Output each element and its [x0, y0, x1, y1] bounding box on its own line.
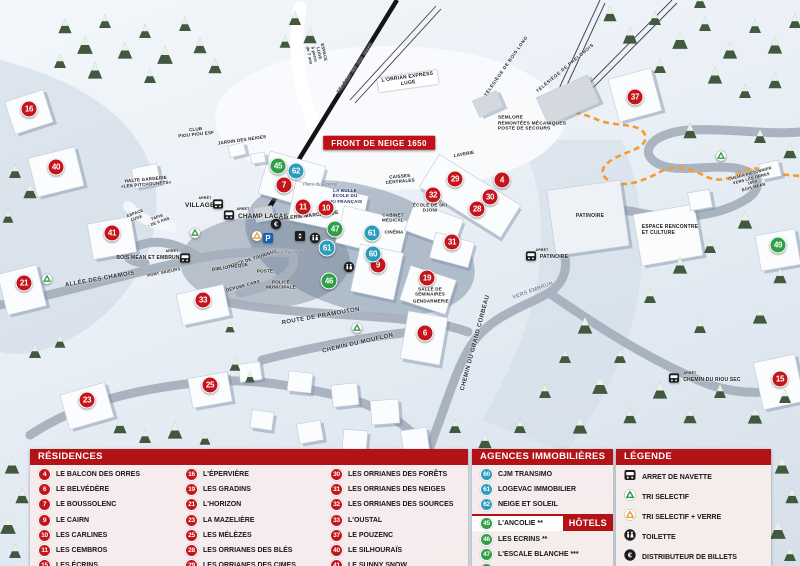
svg-text:€: € — [274, 221, 278, 228]
list-item-label: L'ÉPERVIÈRE — [203, 471, 249, 478]
marker-number-badge: 31 — [330, 483, 343, 496]
marker-number-badge: 7 — [38, 498, 51, 511]
marker-number-badge: 25 — [185, 529, 198, 542]
building — [633, 204, 703, 266]
map-marker-6: 6 — [417, 325, 434, 342]
tree-icon — [603, 6, 616, 21]
legend-item: €DISTRIBUTEUR DE BILLETS — [616, 547, 771, 566]
tree-icon — [225, 321, 235, 332]
tree-icon — [478, 433, 491, 448]
building — [342, 429, 368, 451]
map-marker-37: 37 — [627, 89, 644, 106]
tree-icon — [303, 28, 316, 43]
list-item: 62NEIGE ET SOLEIL — [472, 497, 613, 512]
legend-item: TRI SELECTIF — [616, 487, 771, 507]
map-marker-7: 7 — [276, 177, 293, 194]
map-marker-61: 61 — [364, 225, 381, 242]
marker-number-badge: 19 — [185, 483, 198, 496]
tree-icon — [139, 429, 151, 443]
map-marker-60: 60 — [365, 246, 382, 263]
list-item: 19LES GRADINS — [177, 482, 322, 497]
tree-icon — [789, 14, 800, 28]
tree-icon — [139, 24, 151, 38]
marker-number-badge: 33 — [330, 514, 343, 527]
tree-icon — [280, 35, 291, 48]
tree-icon — [88, 62, 102, 79]
tree-icon — [200, 432, 211, 445]
list-item-label: LES ORRIANES DES CIMES — [203, 562, 296, 566]
list-item-label: LE POUZENC — [348, 532, 393, 539]
map-marker-15: 15 — [772, 371, 789, 388]
tree-icon — [683, 408, 696, 423]
tree-icon — [5, 457, 19, 474]
tree-icon — [672, 31, 688, 49]
agences-title: AGENCES IMMOBILIÈRES — [472, 449, 613, 465]
list-item-label: LES GRADINS — [203, 486, 251, 493]
tree-icon — [54, 54, 66, 68]
list-item-label: LE CAIRN — [56, 517, 89, 524]
list-item: 45L'ANCOLIE ** — [472, 517, 543, 530]
list-item: 29LES ORRIANES DES CIMES — [177, 558, 322, 566]
map-marker-61: 61 — [319, 240, 336, 257]
tree-icon — [118, 42, 132, 59]
list-item: 9LE CAIRN — [30, 513, 177, 528]
tree-icon — [208, 58, 221, 73]
map-marker-41: 41 — [104, 225, 121, 242]
map-marker-31: 31 — [444, 234, 461, 251]
legend-item-label: DISTRIBUTEUR DE BILLETS — [642, 554, 737, 561]
bus-stop-icon — [624, 468, 636, 486]
list-item: 6LE BELVÉDÈRE — [30, 482, 177, 497]
building — [287, 371, 313, 393]
tree-icon — [623, 27, 637, 44]
tree-icon — [753, 307, 767, 324]
parking-icon: P — [263, 233, 274, 244]
list-item-label: LE BOUSSOLENC — [56, 501, 116, 508]
tree-icon — [99, 14, 111, 28]
svg-text:P: P — [265, 234, 270, 243]
marker-number-badge: 41 — [330, 559, 343, 566]
list-item-label: L'ANCOLIE ** — [498, 520, 543, 527]
marker-number-badge: 9 — [38, 514, 51, 527]
tree-icon — [770, 521, 786, 539]
list-item: 49LES TRAPPEURS ** — [472, 562, 613, 566]
tree-icon — [653, 382, 667, 399]
tree-icon — [739, 84, 751, 98]
map-marker-4: 4 — [494, 172, 511, 189]
building — [250, 152, 265, 164]
list-item-label: LA MAZELIÈRE — [203, 517, 254, 524]
map-marker-28: 28 — [469, 201, 486, 218]
tree-icon — [157, 46, 173, 64]
building — [331, 383, 359, 408]
map-marker-33: 33 — [195, 292, 212, 309]
list-item-label: LES ECRINS ** — [498, 536, 547, 543]
tree-icon — [699, 17, 711, 31]
list-item: 11LES CEMBROS — [30, 543, 177, 558]
legende-panel: LÉGENDE ARRET DE NAVETTETRI SELECTIFTRI … — [616, 449, 771, 566]
recycle-glass-icon — [252, 231, 263, 242]
list-item-label: L'ESCALE BLANCHE *** — [498, 551, 579, 558]
building — [370, 399, 400, 425]
bus-stop-icon — [526, 251, 537, 262]
map-marker-29: 29 — [447, 171, 464, 188]
tree-icon — [644, 289, 656, 303]
map-marker-45: 45 — [270, 158, 287, 175]
list-item: 7LE BOUSSOLENC — [30, 497, 177, 512]
list-item-label: LE SUNNY SNOW — [348, 562, 407, 566]
list-item-label: LES ORRIANES DES FORÊTS — [348, 471, 447, 478]
list-item: 23LA MAZELIÈRE — [177, 513, 322, 528]
marker-number-badge: 40 — [330, 544, 343, 557]
list-item: 16L'ÉPERVIÈRE — [177, 467, 322, 482]
toilet-icon — [624, 528, 636, 546]
map-marker-11: 11 — [295, 199, 312, 216]
list-item-label: L'OUSTAL — [348, 517, 382, 524]
marker-number-badge: 45 — [480, 517, 493, 530]
bus-stop-icon — [224, 210, 235, 221]
tree-icon — [449, 419, 461, 433]
recycle-icon — [190, 228, 201, 239]
map-marker-10: 10 — [318, 200, 335, 217]
tree-icon — [723, 42, 737, 59]
map-marker-16: 16 — [21, 101, 38, 118]
marker-number-badge: 37 — [330, 529, 343, 542]
recycle-glass-icon — [624, 508, 636, 526]
residences-panel: RÉSIDENCES 4LE BALCON DES ORRES6LE BELVÉ… — [30, 449, 468, 566]
building — [250, 410, 274, 431]
list-item: 15LES ÉCRINS — [30, 558, 177, 566]
bus-stop-icon — [180, 253, 191, 264]
marker-number-badge: 28 — [185, 544, 198, 557]
tree-icon — [785, 488, 798, 503]
list-item-label: LE BALCON DES ORRES — [56, 471, 140, 478]
building — [547, 180, 629, 256]
map-marker-19: 19 — [419, 270, 436, 287]
list-item-label: LES CARLINES — [56, 532, 107, 539]
tree-icon — [708, 67, 722, 84]
building — [296, 420, 323, 444]
map-marker-47: 47 — [327, 221, 344, 238]
atm-icon: € — [271, 219, 282, 230]
list-item-label: LES CEMBROS — [56, 547, 107, 554]
tree-icon — [749, 19, 761, 33]
marker-number-badge: 61 — [480, 483, 493, 496]
map-marker-30: 30 — [482, 189, 499, 206]
legend-item: ARRET DE NAVETTE — [616, 467, 771, 487]
map-marker-40: 40 — [48, 159, 65, 176]
marker-number-badge: 23 — [185, 514, 198, 527]
tree-icon — [694, 0, 706, 8]
marker-number-badge: 32 — [330, 498, 343, 511]
tree-icon — [654, 59, 666, 73]
tree-icon — [738, 212, 752, 229]
list-item-label: L'HORIZON — [203, 501, 241, 508]
list-item: 60CJM TRANSIMO — [472, 467, 613, 482]
map-marker-25: 25 — [202, 377, 219, 394]
list-item-label: LES ORRIANES DES NEIGES — [348, 486, 445, 493]
tree-icon — [775, 457, 789, 474]
marker-number-badge: 46 — [480, 533, 493, 546]
list-item: 21L'HORIZON — [177, 497, 322, 512]
legend-item-label: TRI SELECTIF — [642, 494, 689, 501]
list-item-label: NEIGE ET SOLEIL — [498, 501, 558, 508]
legende-title: LÉGENDE — [616, 449, 771, 465]
list-item-label: CJM TRANSIMO — [498, 471, 552, 478]
list-item: 47L'ESCALE BLANCHE *** — [472, 547, 613, 562]
map-marker-32: 32 — [425, 187, 442, 204]
list-item-label: LOGEVAC IMMOBILIER — [498, 486, 576, 493]
legend-item-label: TOILETTE — [642, 534, 676, 541]
marker-number-badge: 6 — [38, 483, 51, 496]
marker-number-badge: 11 — [38, 544, 51, 557]
map-marker-23: 23 — [79, 392, 96, 409]
tree-icon — [768, 73, 781, 88]
list-item-label: LES ÉCRINS — [56, 562, 98, 566]
marker-number-badge: 21 — [185, 498, 198, 511]
map-marker-62: 62 — [288, 163, 305, 180]
list-item-label: LES ORRIANES DES BLÉS — [203, 547, 292, 554]
tree-icon — [9, 544, 21, 558]
bus-stop-icon — [213, 199, 224, 210]
list-item-label: LE SILHOURAÏS — [348, 547, 402, 554]
map-marker-46: 46 — [321, 273, 338, 290]
tree-icon — [113, 418, 126, 433]
toilet-icon — [344, 262, 355, 273]
list-item: 25LES MÉLÈZES — [177, 528, 322, 543]
map-marker-21: 21 — [16, 275, 33, 292]
list-item: 33L'OUSTAL — [322, 513, 468, 528]
tree-icon — [193, 38, 206, 53]
tree-icon — [704, 239, 716, 253]
atm-icon: € — [624, 548, 636, 566]
list-item: 4LE BALCON DES ORRES — [30, 467, 177, 482]
elevator-icon — [295, 231, 306, 242]
list-item: 30LES ORRIANES DES FORÊTS — [322, 467, 468, 482]
hotels-title: HÔTELS — [563, 516, 613, 531]
marker-number-badge: 29 — [185, 559, 198, 566]
tree-icon — [783, 143, 796, 158]
list-item-label: LES MÉLÈZES — [203, 532, 252, 539]
marker-number-badge: 10 — [38, 529, 51, 542]
marker-number-badge: 4 — [38, 468, 51, 481]
list-item-label: LE BELVÉDÈRE — [56, 486, 109, 493]
recycle-icon — [42, 274, 53, 285]
marker-number-badge: 16 — [185, 468, 198, 481]
map-marker-49: 49 — [770, 237, 787, 254]
station-map-page: FRONT DE NEIGE 1650TÉLÉSKI DU PIC VERTTÉ… — [0, 0, 800, 566]
tree-icon — [768, 37, 782, 54]
list-item: 46LES ECRINS ** — [472, 532, 613, 547]
tree-icon — [0, 516, 16, 534]
tree-icon — [623, 408, 636, 423]
tree-icon — [179, 17, 191, 31]
list-item-label: LES ORRIANES DES SOURCES — [348, 501, 453, 508]
tree-icon — [77, 36, 93, 54]
marker-number-badge: 47 — [480, 548, 493, 561]
legend-item: TOILETTE — [616, 527, 771, 547]
tree-icon — [694, 319, 706, 333]
hotels-header-row: 45L'ANCOLIE ** HÔTELS — [472, 514, 613, 531]
list-item: 32LES ORRIANES DES SOURCES — [322, 497, 468, 512]
tree-icon — [748, 407, 762, 424]
tree-icon — [144, 69, 156, 83]
list-item: 41LE SUNNY SNOW — [322, 558, 468, 566]
agences-hotels-panel: AGENCES IMMOBILIÈRES 60CJM TRANSIMO61LOG… — [472, 449, 613, 566]
bus-stop-icon — [669, 373, 680, 384]
list-item: 40LE SILHOURAÏS — [322, 543, 468, 558]
tree-icon — [58, 18, 71, 33]
list-item: 37LE POUZENC — [322, 528, 468, 543]
legend-item-label: TRI SELECTIF + VERRE — [642, 514, 721, 521]
list-item: 10LES CARLINES — [30, 528, 177, 543]
legend-item-label: ARRET DE NAVETTE — [642, 474, 712, 481]
recycle-icon — [352, 323, 363, 334]
tree-icon — [784, 547, 796, 561]
marker-number-badge: 30 — [330, 468, 343, 481]
legend-item: TRI SELECTIF + VERRE — [616, 507, 771, 527]
toilet-icon — [310, 233, 321, 244]
list-item: 31LES ORRIANES DES NEIGES — [322, 482, 468, 497]
building — [688, 189, 713, 211]
tree-icon — [15, 488, 28, 503]
recycle-icon — [716, 151, 727, 162]
marker-number-badge: 60 — [480, 468, 493, 481]
list-item: 61LOGEVAC IMMOBILIER — [472, 482, 613, 497]
tree-icon — [168, 422, 182, 439]
list-item: 28LES ORRIANES DES BLÉS — [177, 543, 322, 558]
residences-title: RÉSIDENCES — [30, 449, 468, 465]
recycle-icon — [624, 488, 636, 506]
marker-number-badge: 62 — [480, 498, 493, 511]
marker-number-badge: 15 — [38, 559, 51, 566]
